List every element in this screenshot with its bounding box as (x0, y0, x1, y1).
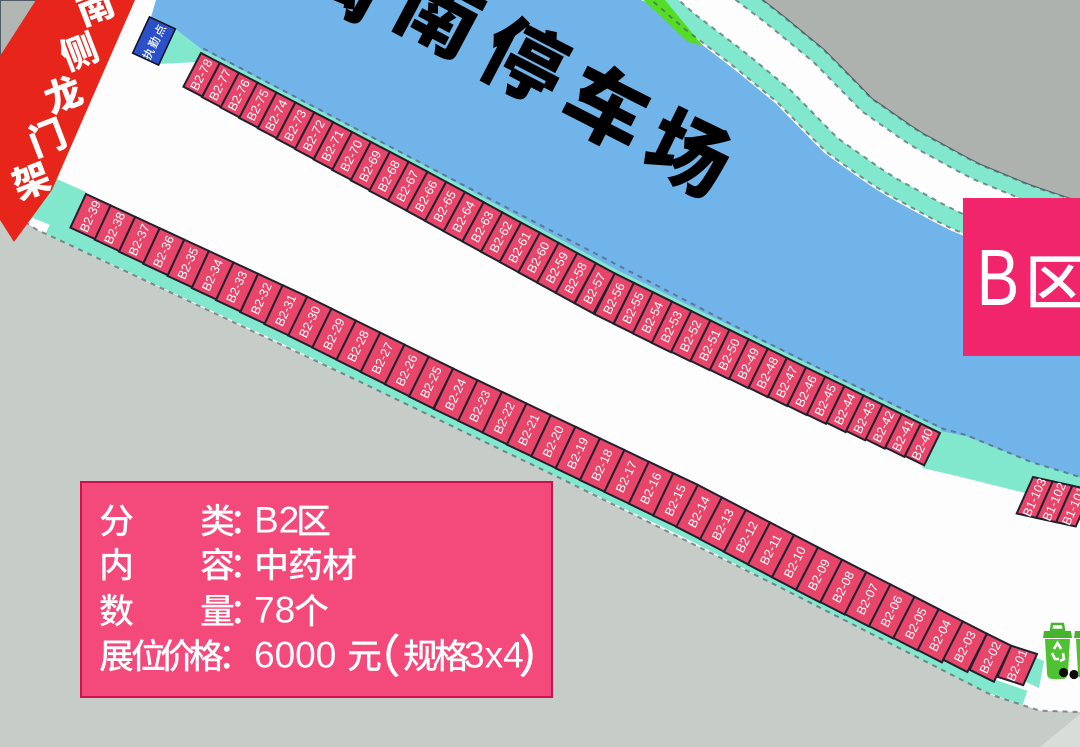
svg-text:B: B (977, 233, 1020, 322)
svg-text:B2: B2 (254, 500, 299, 541)
svg-text:78: 78 (254, 590, 295, 631)
svg-text:3x4: 3x4 (464, 635, 524, 676)
svg-text:6000: 6000 (254, 635, 336, 676)
